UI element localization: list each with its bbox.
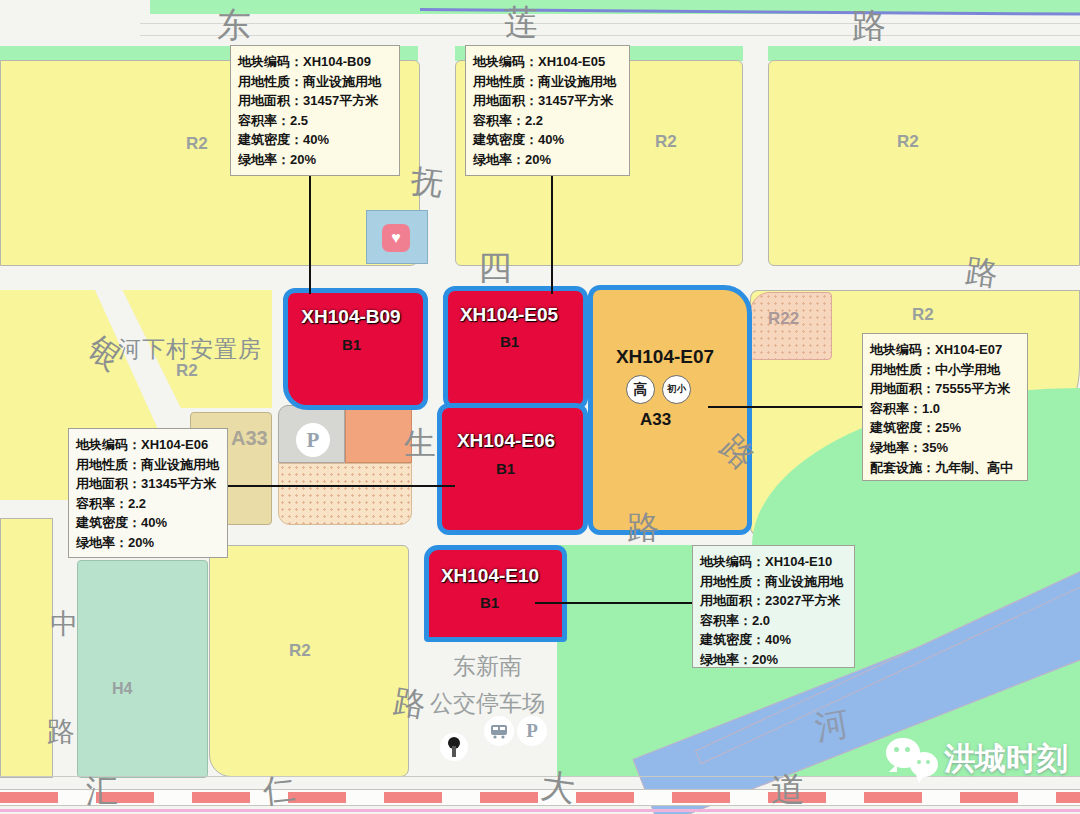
bus-depot-label-line1: 东新南 [415,648,560,685]
parcel-residential [768,60,1080,266]
road-label-lu-east: 路 [964,254,1000,290]
parcel-peach [278,463,412,525]
annotation-line: 用地性质：商业设施用地 [473,72,622,92]
road-label-lu-mid: 路 [627,511,659,543]
annotation-line: 绿地率：35% [870,438,1020,458]
leader-line-b09 [309,176,311,294]
school-badge-primary-label: 初小 [667,383,686,396]
parcel-b09-code: XH104-B09 [286,307,416,326]
road-label-da: 大 [539,768,577,806]
road-label-si: 四 [478,250,512,284]
annotation-box-b09: 地块编码：XH104-B09 用地性质：商业设施用地 用地面积：31457平方米… [230,45,400,176]
resettlement-label: 河下村安置房 [118,334,262,365]
annotation-line: 用地面积：31345平方米 [76,474,220,494]
annotation-line: 地块编码：XH104-E06 [76,435,220,455]
parcel-e07-zone: A33 [640,411,671,428]
parcel-salmon [345,405,412,463]
heart-icon: ♥ [382,224,410,252]
zone-label-r2: R2 [655,133,677,150]
school-badge-high: 高 [626,375,655,404]
parcel-e10-zone: B1 [480,595,499,610]
bus-depot-label-line2: 公交停车场 [415,685,560,722]
parcel-e10-code: XH104-E10 [425,566,555,585]
annotation-line: 地块编码：XH104-B09 [238,52,392,72]
parking-icon-letter: P [307,428,320,453]
parcel-welfare: ♥ [366,210,428,264]
annotation-line: 用地面积：23027平方米 [700,591,847,611]
leader-line-e06 [228,485,455,487]
annotation-box-e05: 地块编码：XH104-E05 用地性质：商业设施用地 用地面积：31457平方米… [465,45,630,176]
road-label-dong: 东 [217,8,251,42]
parcel-residential [0,518,53,778]
wechat-icon [886,736,938,782]
annotation-line: 绿地率：20% [473,150,622,170]
river-label-he: 河 [812,705,851,744]
station-pin-icon [440,733,468,761]
zone-label-h4: H4 [112,681,132,697]
watermark-text: 洪城时刻 [944,738,1068,780]
leader-line-e10 [535,602,692,604]
annotation-line: 用地性质：商业设施用地 [238,72,392,92]
annotation-line: 绿地率：20% [76,533,220,553]
resettlement-label-text: 河下村安置房 [118,336,262,362]
school-badge-primary: 初小 [662,375,691,404]
bus-parking-icon-letter: P [526,720,538,742]
annotation-line: 容积率：1.0 [870,399,1020,419]
annotation-line: 用地性质：中小学用地 [870,360,1020,380]
annotation-box-e06: 地块编码：XH104-E06 用地性质：商业设施用地 用地面积：31345平方米… [68,428,228,558]
annotation-line: 建筑密度：40% [76,513,220,533]
zone-label-r2: R2 [912,306,934,323]
zone-label-r2: R2 [186,135,208,152]
annotation-line: 建筑密度：25% [870,418,1020,438]
road-label-hui: 汇 [86,775,118,807]
annotation-line: 绿地率：20% [700,650,847,670]
bus-depot-label: 东新南 公交停车场 [415,648,560,722]
bus-icon-glyph [490,724,508,739]
parcel-e06-zone: B1 [496,461,515,476]
annotation-line: 地块编码：XH104-E05 [473,52,622,72]
parcel-h4 [77,560,208,778]
station-pin-glyph [448,737,460,757]
parcel-b09-zone: B1 [342,337,361,352]
annotation-line: 建筑密度：40% [473,130,622,150]
zone-label-r2: R2 [289,642,311,659]
road-label-zhong: 中 [50,610,78,638]
road-label-ren: 仁 [261,772,296,807]
annotation-line: 用地性质：商业设施用地 [700,572,847,592]
parcel-residential [209,545,409,777]
annotation-line: 地块编码：XH104-E07 [870,340,1020,360]
road-label-lu-top: 路 [852,8,886,42]
watermark-text-span: 洪城时刻 [944,741,1068,776]
leader-line-e07 [708,406,862,408]
annotation-box-e10: 地块编码：XH104-E10 用地性质：商业设施用地 用地面积：23027平方米… [692,545,855,668]
green-strip [768,46,1080,61]
annotation-line: 用地面积：31457平方米 [238,91,392,111]
zoning-map: ♥ XH104-B09 B1 XH104-E05 B1 XH104-E06 B1… [0,0,1080,814]
annotation-line: 建筑密度：40% [700,630,847,650]
annotation-box-e07: 地块编码：XH104-E07 用地性质：中小学用地 用地面积：75555平方米 … [862,333,1028,481]
road-label-sheng: 生 [404,427,436,459]
annotation-line: 用地面积：75555平方米 [870,379,1020,399]
lane-line [140,35,1080,36]
annotation-line: 地块编码：XH104-E10 [700,552,847,572]
parcel-e07-code: XH104-E07 [600,347,730,366]
annotation-line: 用地性质：商业设施用地 [76,455,220,475]
watermark: 洪城时刻 [886,736,1068,782]
annotation-line: 容积率：2.2 [76,494,220,514]
lane-line [140,23,1080,24]
annotation-line: 用地面积：31457平方米 [473,91,622,111]
annotation-line: 绿地率：20% [238,150,392,170]
parcel-e05-code: XH104-E05 [444,305,574,324]
zone-label-r2: R2 [897,133,919,150]
zone-label-r22: R22 [768,310,799,327]
zone-label-a33: A33 [231,428,268,448]
annotation-line: 容积率：2.2 [473,111,622,131]
annotation-line: 配套设施：九年制、高中 [870,458,1020,478]
road-label-dao: 道 [771,772,805,806]
leader-line-e05 [551,176,553,294]
parking-icon: P [296,423,330,457]
school-badge-high-label: 高 [634,381,648,399]
road-label-lian: 莲 [504,5,538,39]
parcel-e05-zone: B1 [500,334,519,349]
annotation-line: 容积率：2.0 [700,611,847,631]
road-label-fu: 抚 [409,164,444,199]
road-label-lu-west: 路 [47,718,75,746]
parcel-e06-code: XH104-E06 [441,431,571,450]
annotation-line: 容积率：2.5 [238,111,392,131]
pipeline-line [0,809,1080,812]
annotation-line: 建筑密度：40% [238,130,392,150]
